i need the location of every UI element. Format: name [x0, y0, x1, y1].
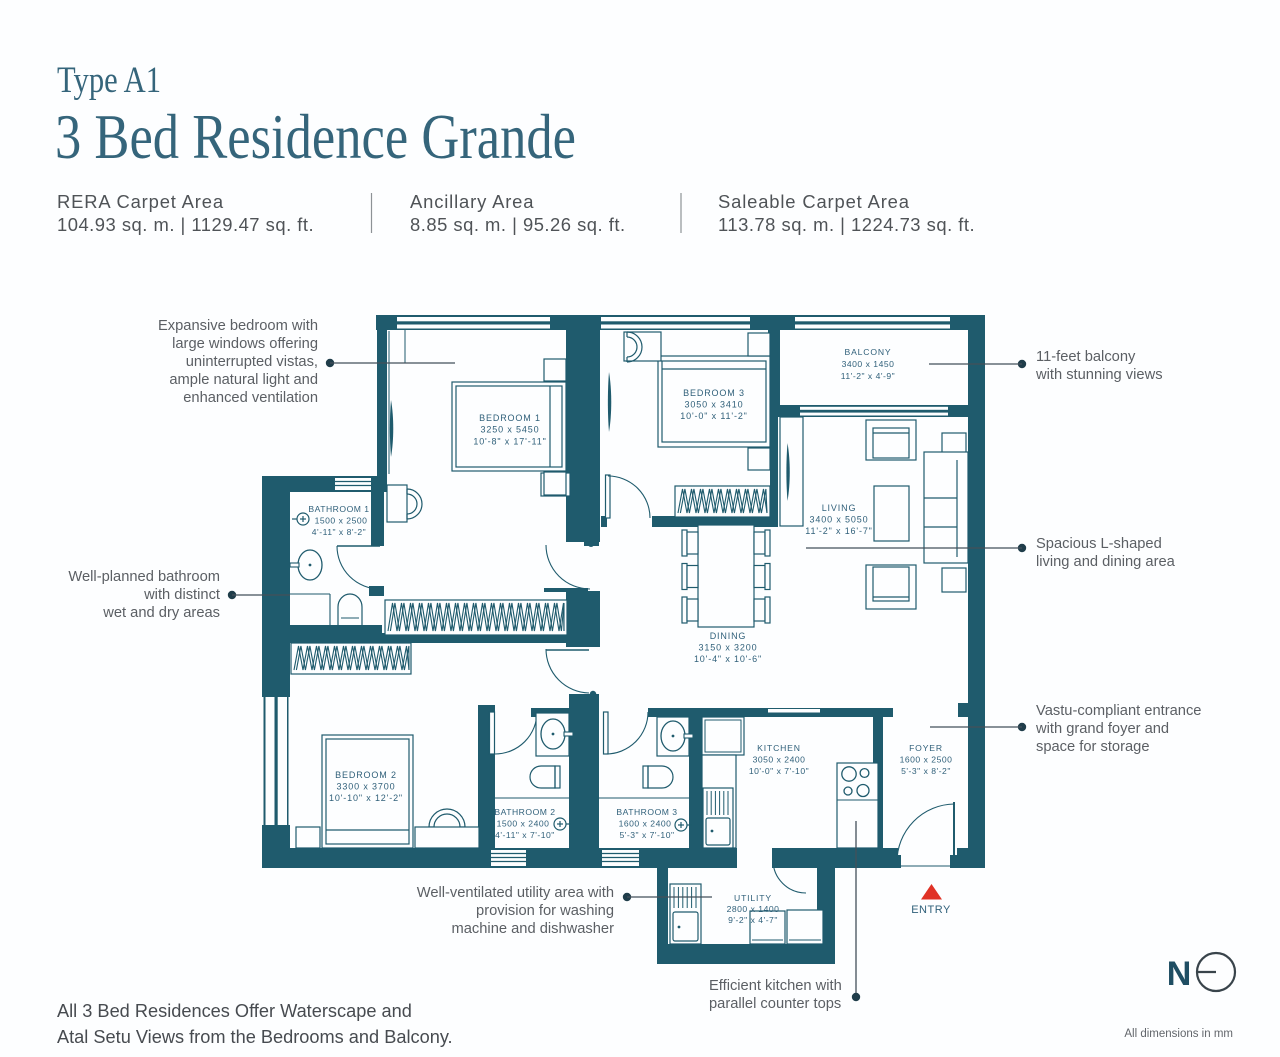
svg-text:1500 x 2500: 1500 x 2500	[315, 516, 368, 526]
svg-text:5'-3" x 8'-2": 5'-3" x 8'-2"	[901, 766, 951, 776]
svg-text:3400 x 5050: 3400 x 5050	[810, 515, 869, 525]
svg-text:3050 x 2400: 3050 x 2400	[753, 755, 806, 765]
svg-text:11'-2" x 4'-9": 11'-2" x 4'-9"	[841, 371, 895, 381]
svg-text:8.85 sq. m. | 95.26 sq. ft.: 8.85 sq. m. | 95.26 sq. ft.	[410, 214, 626, 235]
svg-text:10'-0" x 7'-10": 10'-0" x 7'-10"	[749, 766, 809, 776]
svg-text:Well-planned bathroom: Well-planned bathroom	[68, 569, 220, 585]
svg-text:enhanced ventilation: enhanced ventilation	[183, 390, 318, 406]
svg-text:3250 x 5450: 3250 x 5450	[481, 425, 540, 435]
svg-text:with stunning views: with stunning views	[1035, 367, 1163, 383]
svg-text:RERA Carpet Area: RERA Carpet Area	[57, 191, 224, 212]
svg-text:BEDROOM 1: BEDROOM 1	[479, 413, 541, 423]
svg-text:ample natural light and: ample natural light and	[169, 372, 318, 388]
svg-text:1600 x 2500: 1600 x 2500	[900, 755, 953, 765]
svg-text:N: N	[1167, 955, 1192, 993]
svg-text:Atal Setu Views from the Bedro: Atal Setu Views from the Bedrooms and Ba…	[57, 1027, 453, 1047]
svg-text:KITCHEN: KITCHEN	[757, 743, 801, 753]
svg-text:DINING: DINING	[710, 631, 747, 641]
svg-text:space for storage: space for storage	[1036, 739, 1149, 755]
svg-text:BEDROOM 2: BEDROOM 2	[335, 770, 397, 780]
svg-text:living and dining area: living and dining area	[1036, 554, 1176, 570]
svg-text:Spacious L-shaped: Spacious L-shaped	[1036, 536, 1162, 552]
svg-text:BALCONY: BALCONY	[844, 347, 891, 357]
svg-text:BATHROOM 2: BATHROOM 2	[494, 807, 555, 817]
svg-text:10'-4" x 10'-6": 10'-4" x 10'-6"	[694, 654, 762, 664]
svg-text:1500 x 2400: 1500 x 2400	[497, 819, 550, 829]
svg-text:3 Bed Residence Grande: 3 Bed Residence Grande	[55, 102, 576, 172]
svg-text:with grand foyer and: with grand foyer and	[1035, 721, 1169, 737]
svg-text:2800 x 1400: 2800 x 1400	[727, 904, 780, 914]
svg-text:3050 x 3410: 3050 x 3410	[685, 400, 744, 410]
svg-text:5'-3" x 7'-10": 5'-3" x 7'-10"	[619, 830, 674, 840]
svg-text:BATHROOM 1: BATHROOM 1	[308, 504, 369, 514]
svg-text:3300 x 3700: 3300 x 3700	[337, 782, 396, 792]
svg-text:10'-0" x 11'-2": 10'-0" x 11'-2"	[680, 411, 747, 421]
svg-text:UTILITY: UTILITY	[734, 893, 772, 903]
svg-text:3150 x 3200: 3150 x 3200	[699, 643, 758, 653]
svg-text:Saleable Carpet Area: Saleable Carpet Area	[718, 191, 910, 212]
svg-text:uninterrupted vistas,: uninterrupted vistas,	[186, 354, 318, 370]
svg-text:Type A1: Type A1	[57, 60, 161, 101]
svg-text:with distinct: with distinct	[143, 587, 220, 603]
svg-text:11'-2" x 16'-7": 11'-2" x 16'-7"	[805, 526, 872, 536]
svg-text:ENTRY: ENTRY	[911, 904, 951, 916]
svg-text:3400 x 1450: 3400 x 1450	[842, 359, 895, 369]
svg-text:4'-11" x 7'-10": 4'-11" x 7'-10"	[495, 830, 555, 840]
svg-text:Well-ventilated utility area w: Well-ventilated utility area with	[417, 885, 614, 901]
svg-text:Vastu-compliant entrance: Vastu-compliant entrance	[1036, 703, 1201, 719]
svg-text:10'-8" x 17'-11": 10'-8" x 17'-11"	[473, 437, 546, 447]
svg-text:10'-10" x 12'-2": 10'-10" x 12'-2"	[329, 793, 403, 803]
svg-text:provision for washing: provision for washing	[476, 903, 614, 919]
svg-text:All dimensions in mm: All dimensions in mm	[1124, 1028, 1233, 1040]
svg-text:All 3 Bed Residences Offer Wat: All 3 Bed Residences Offer Waterscape an…	[57, 1001, 412, 1021]
svg-text:BATHROOM 3: BATHROOM 3	[616, 807, 677, 817]
svg-text:1600 x 2400: 1600 x 2400	[619, 819, 672, 829]
svg-text:FOYER: FOYER	[909, 743, 943, 753]
svg-text:large windows offering: large windows offering	[172, 336, 318, 352]
svg-text:Expansive bedroom with: Expansive bedroom with	[158, 318, 318, 334]
svg-text:BEDROOM 3: BEDROOM 3	[683, 388, 745, 398]
svg-text:11-feet balcony: 11-feet balcony	[1036, 349, 1136, 365]
svg-text:machine and dishwasher: machine and dishwasher	[452, 921, 615, 937]
svg-text:parallel counter tops: parallel counter tops	[709, 996, 841, 1012]
svg-text:LIVING: LIVING	[822, 503, 857, 513]
svg-text:wet and dry areas: wet and dry areas	[102, 605, 220, 621]
svg-text:Efficient kitchen with: Efficient kitchen with	[709, 978, 842, 994]
svg-text:Ancillary Area: Ancillary Area	[410, 191, 534, 212]
svg-text:4'-11" x 8'-2": 4'-11" x 8'-2"	[312, 527, 366, 537]
svg-text:9'-2" x 4'-7": 9'-2" x 4'-7"	[728, 915, 778, 925]
svg-text:104.93 sq. m. | 1129.47 sq. ft: 104.93 sq. m. | 1129.47 sq. ft.	[57, 214, 314, 235]
svg-text:113.78 sq. m. | 1224.73 sq. ft: 113.78 sq. m. | 1224.73 sq. ft.	[718, 214, 975, 235]
